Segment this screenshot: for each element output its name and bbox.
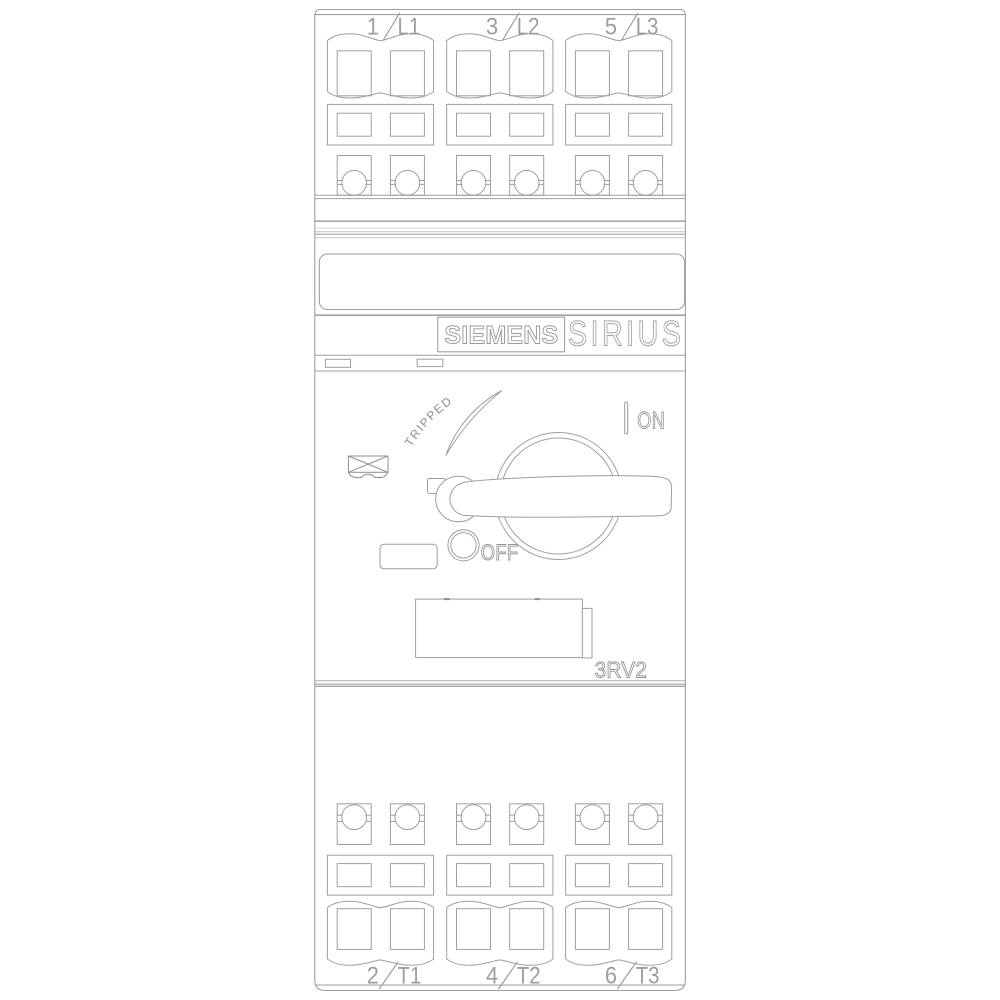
- svg-text:L1: L1: [397, 13, 420, 40]
- svg-text:SIEMENS: SIEMENS: [444, 321, 558, 349]
- svg-text:5: 5: [605, 12, 617, 39]
- svg-text:L2: L2: [517, 13, 540, 40]
- svg-text:OFF: OFF: [481, 541, 519, 565]
- svg-text:T3: T3: [636, 962, 660, 989]
- svg-text:ON: ON: [637, 408, 665, 434]
- svg-text:3RV2: 3RV2: [595, 657, 647, 683]
- svg-text:T1: T1: [397, 962, 421, 989]
- svg-text:6: 6: [605, 962, 617, 989]
- svg-text:T2: T2: [517, 962, 541, 989]
- svg-text:SIRIUS: SIRIUS: [568, 314, 684, 353]
- svg-text:L3: L3: [636, 13, 659, 40]
- svg-text:1: 1: [367, 12, 379, 39]
- svg-text:4: 4: [486, 962, 498, 989]
- svg-text:2: 2: [367, 962, 379, 989]
- svg-text:3: 3: [486, 12, 498, 39]
